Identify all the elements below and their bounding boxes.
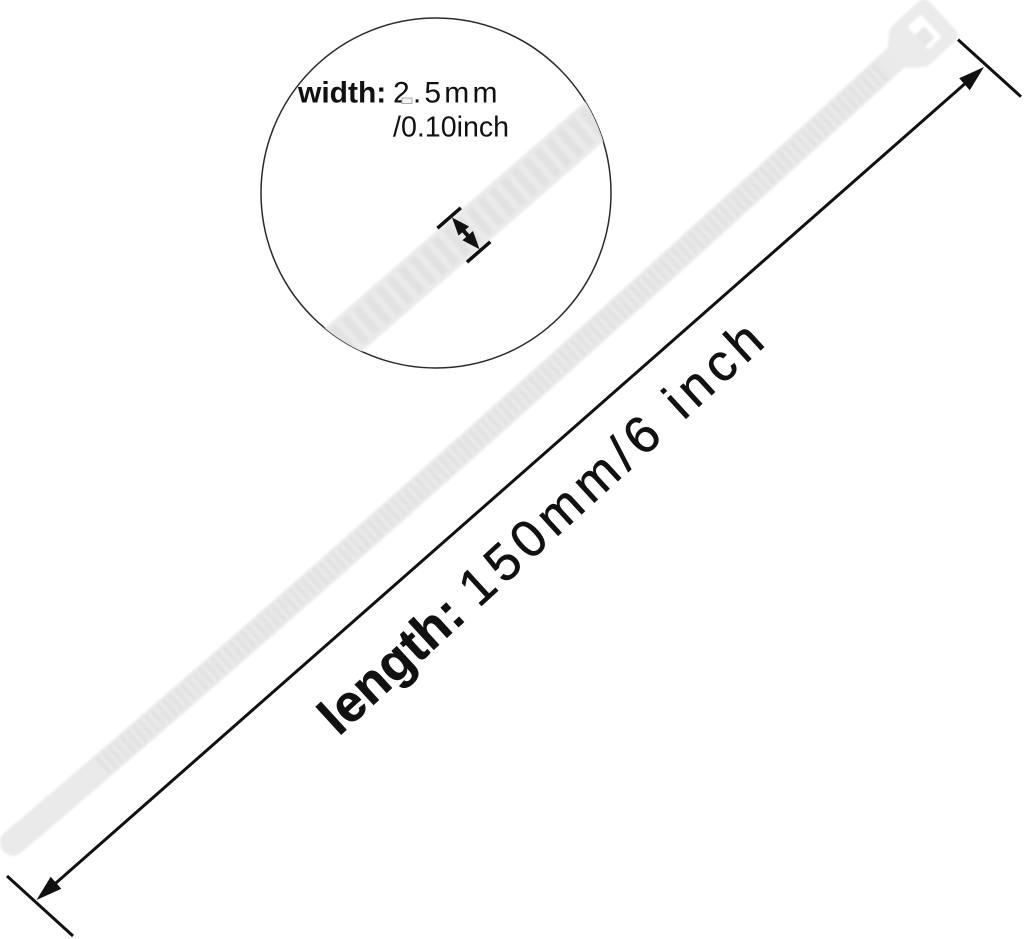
svg-text:/0.10inch: /0.10inch [393, 112, 509, 144]
svg-text:2.5mm: 2.5mm [393, 77, 501, 110]
svg-text:width:: width: [297, 77, 386, 110]
